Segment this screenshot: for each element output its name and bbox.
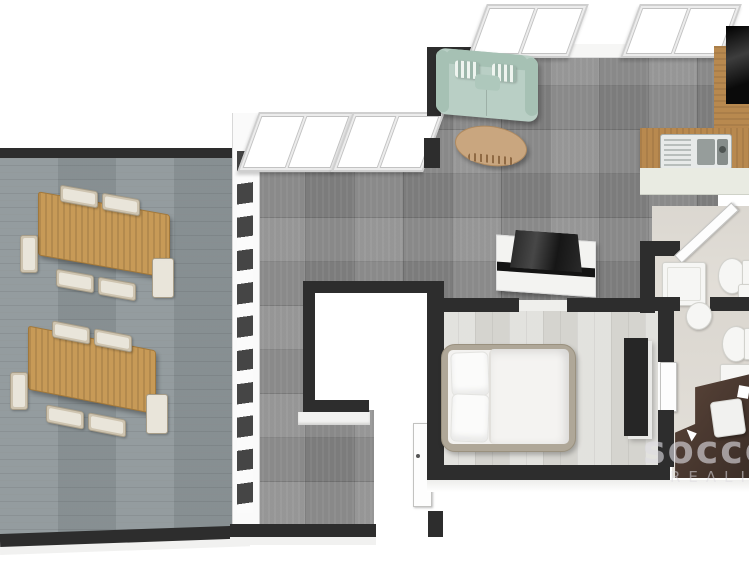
window-wall-panes (237, 151, 253, 513)
bed-pillow (450, 393, 490, 442)
sofa-center-cushion (475, 74, 500, 91)
kitchen-cabinet-front (640, 168, 749, 195)
void-top-wall (303, 281, 435, 293)
void-left-wall (303, 281, 315, 412)
wardrobe-panel (624, 338, 648, 436)
bed-pillow (450, 351, 490, 396)
kitchen-sink (660, 134, 732, 170)
dining-chair (10, 372, 28, 410)
sofa-seat-seam (486, 90, 487, 116)
bedroom-door-threshold (519, 300, 567, 311)
sofa (436, 48, 538, 123)
floor-plan-render: socce REALIT (0, 0, 749, 562)
sofa-arm-right (525, 57, 538, 116)
wc-wall (710, 297, 749, 311)
terrace-top-wall (0, 148, 240, 158)
door-handle (416, 454, 420, 458)
bedroom-right-wall-upper (658, 310, 674, 362)
exterior-wall-stub (428, 511, 443, 537)
sink-basin (697, 139, 715, 165)
hall-bottom-wall (230, 524, 376, 537)
bathroom-wall (640, 241, 680, 256)
tv (510, 229, 582, 272)
dining-chair (152, 258, 174, 298)
watermark-subtitle: REALIT (670, 468, 749, 486)
bedroom-office-door (660, 362, 677, 412)
cooktop (726, 26, 749, 104)
bedroom-top-wall-right (567, 298, 655, 312)
hall-corner-wall (424, 138, 440, 168)
sink-basin (717, 139, 728, 165)
sink-drainboard (664, 138, 691, 166)
window-wall-column (232, 113, 260, 525)
void-bottom-wall (303, 400, 369, 412)
hall-bottom-wall-face (230, 537, 376, 545)
bedroom-bottom-wall (427, 465, 670, 480)
sliding-window (467, 4, 589, 58)
dining-chair (146, 394, 168, 434)
duvet (489, 349, 569, 444)
watermark-logo: socce (643, 428, 749, 472)
void-bottom-wall-face (298, 412, 370, 425)
paper-sheet (737, 385, 749, 399)
sofa-arm-left (436, 50, 449, 113)
toilet-tank (744, 328, 749, 360)
dining-chair (20, 235, 38, 273)
